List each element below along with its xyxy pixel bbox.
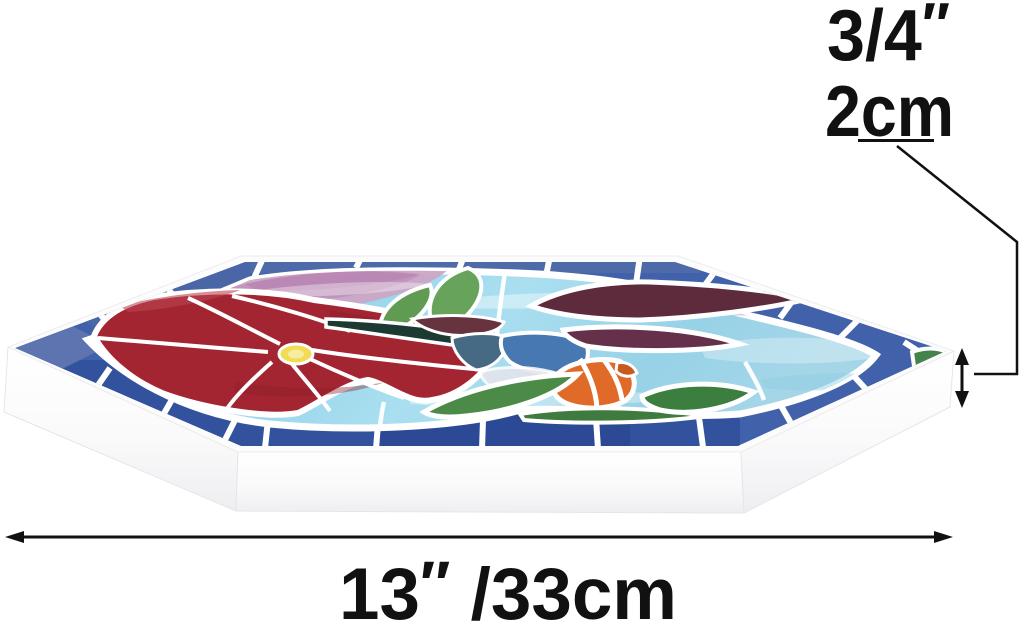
svg-text:13″ /33cm: 13″ /33cm <box>339 548 677 623</box>
svg-text:3/4″: 3/4″ <box>827 0 950 76</box>
svg-text:2cm: 2cm <box>825 72 954 152</box>
